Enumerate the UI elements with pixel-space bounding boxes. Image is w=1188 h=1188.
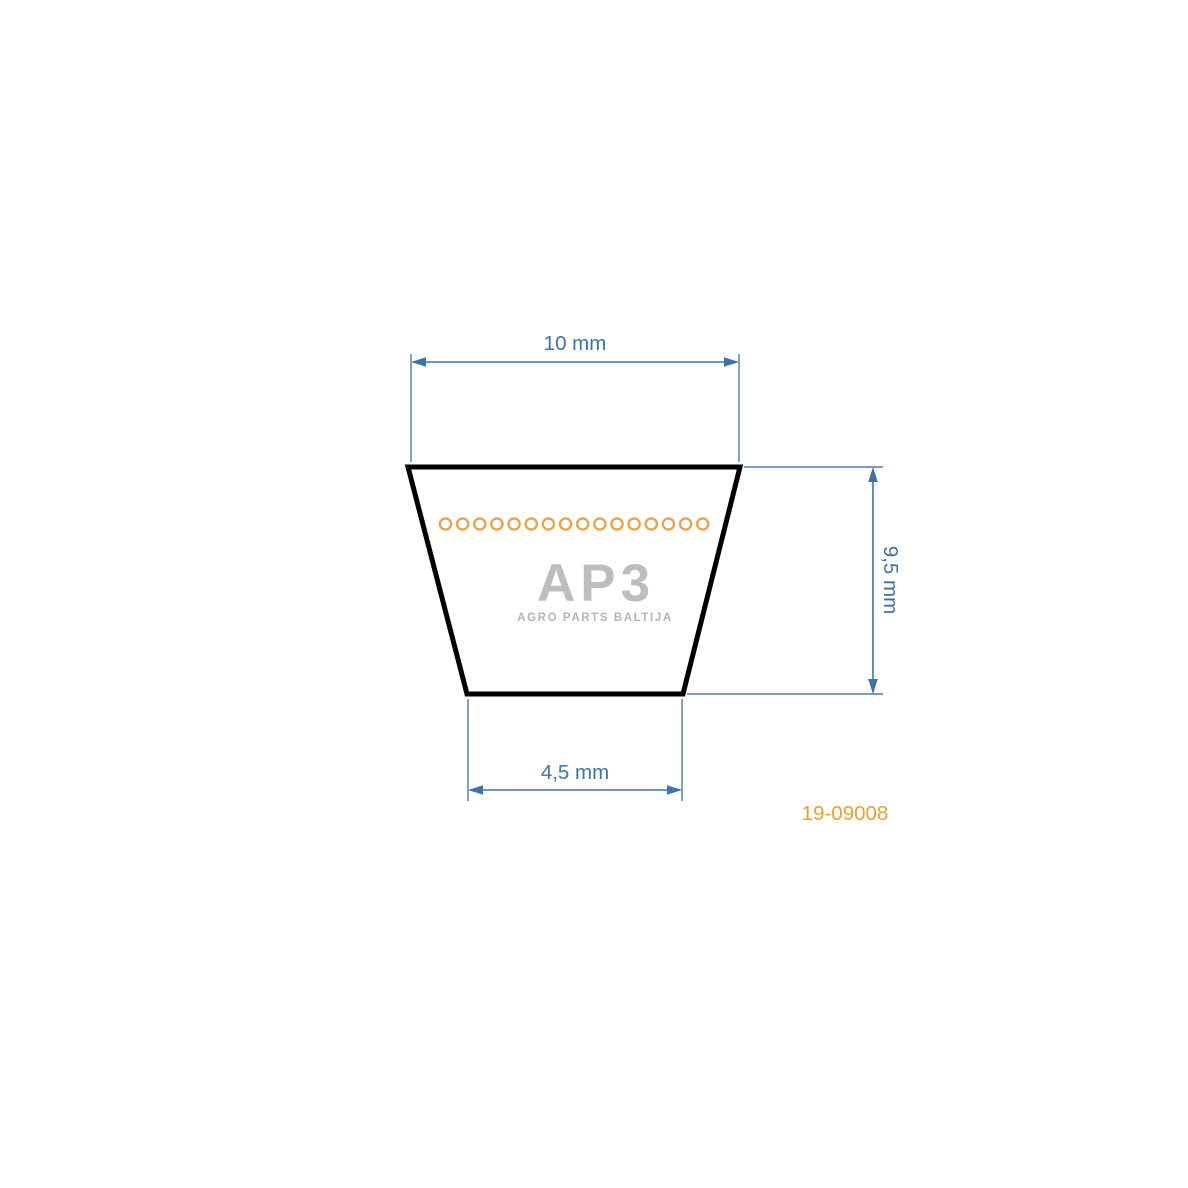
arrow-left-icon [411,357,426,367]
fiber-circle [457,518,468,529]
fiber-circle [474,518,485,529]
apb-logo-text: AP3 [537,554,655,613]
fiber-circle [646,518,657,529]
fiber-circle [629,518,640,529]
bottom-width-dimension: 4,5 mm [468,699,682,801]
watermark: AP3 AGRO PARTS BALTIJA [517,554,673,624]
fiber-circle [440,518,451,529]
fiber-circle [543,518,554,529]
arrow-right-icon [724,357,739,367]
product-diagram-page: AP3 AGRO PARTS BALTIJA 10 mm 4,5 mm [0,0,1188,1188]
belt-diagram: AP3 AGRO PARTS BALTIJA 10 mm 4,5 mm [0,0,1188,1188]
top-width-label: 10 mm [544,332,607,355]
height-label: 9,5 mm [879,546,902,614]
fiber-circle [611,518,622,529]
arrow-left-icon [468,785,483,795]
bottom-width-label: 4,5 mm [541,761,609,784]
top-width-dimension: 10 mm [411,332,739,462]
fiber-circle [663,518,674,529]
fiber-circle [594,518,605,529]
arrow-right-icon [667,785,682,795]
arrow-up-icon [868,467,878,482]
fiber-circle [577,518,588,529]
fiber-circle [508,518,519,529]
fiber-circle [697,518,708,529]
part-number: 19-09008 [802,802,889,825]
fiber-circle [526,518,537,529]
arrow-down-icon [868,679,878,694]
fiber-circle [680,518,691,529]
fiber-circle [491,518,502,529]
apb-tagline: AGRO PARTS BALTIJA [517,612,673,624]
fiber-circle [560,518,571,529]
